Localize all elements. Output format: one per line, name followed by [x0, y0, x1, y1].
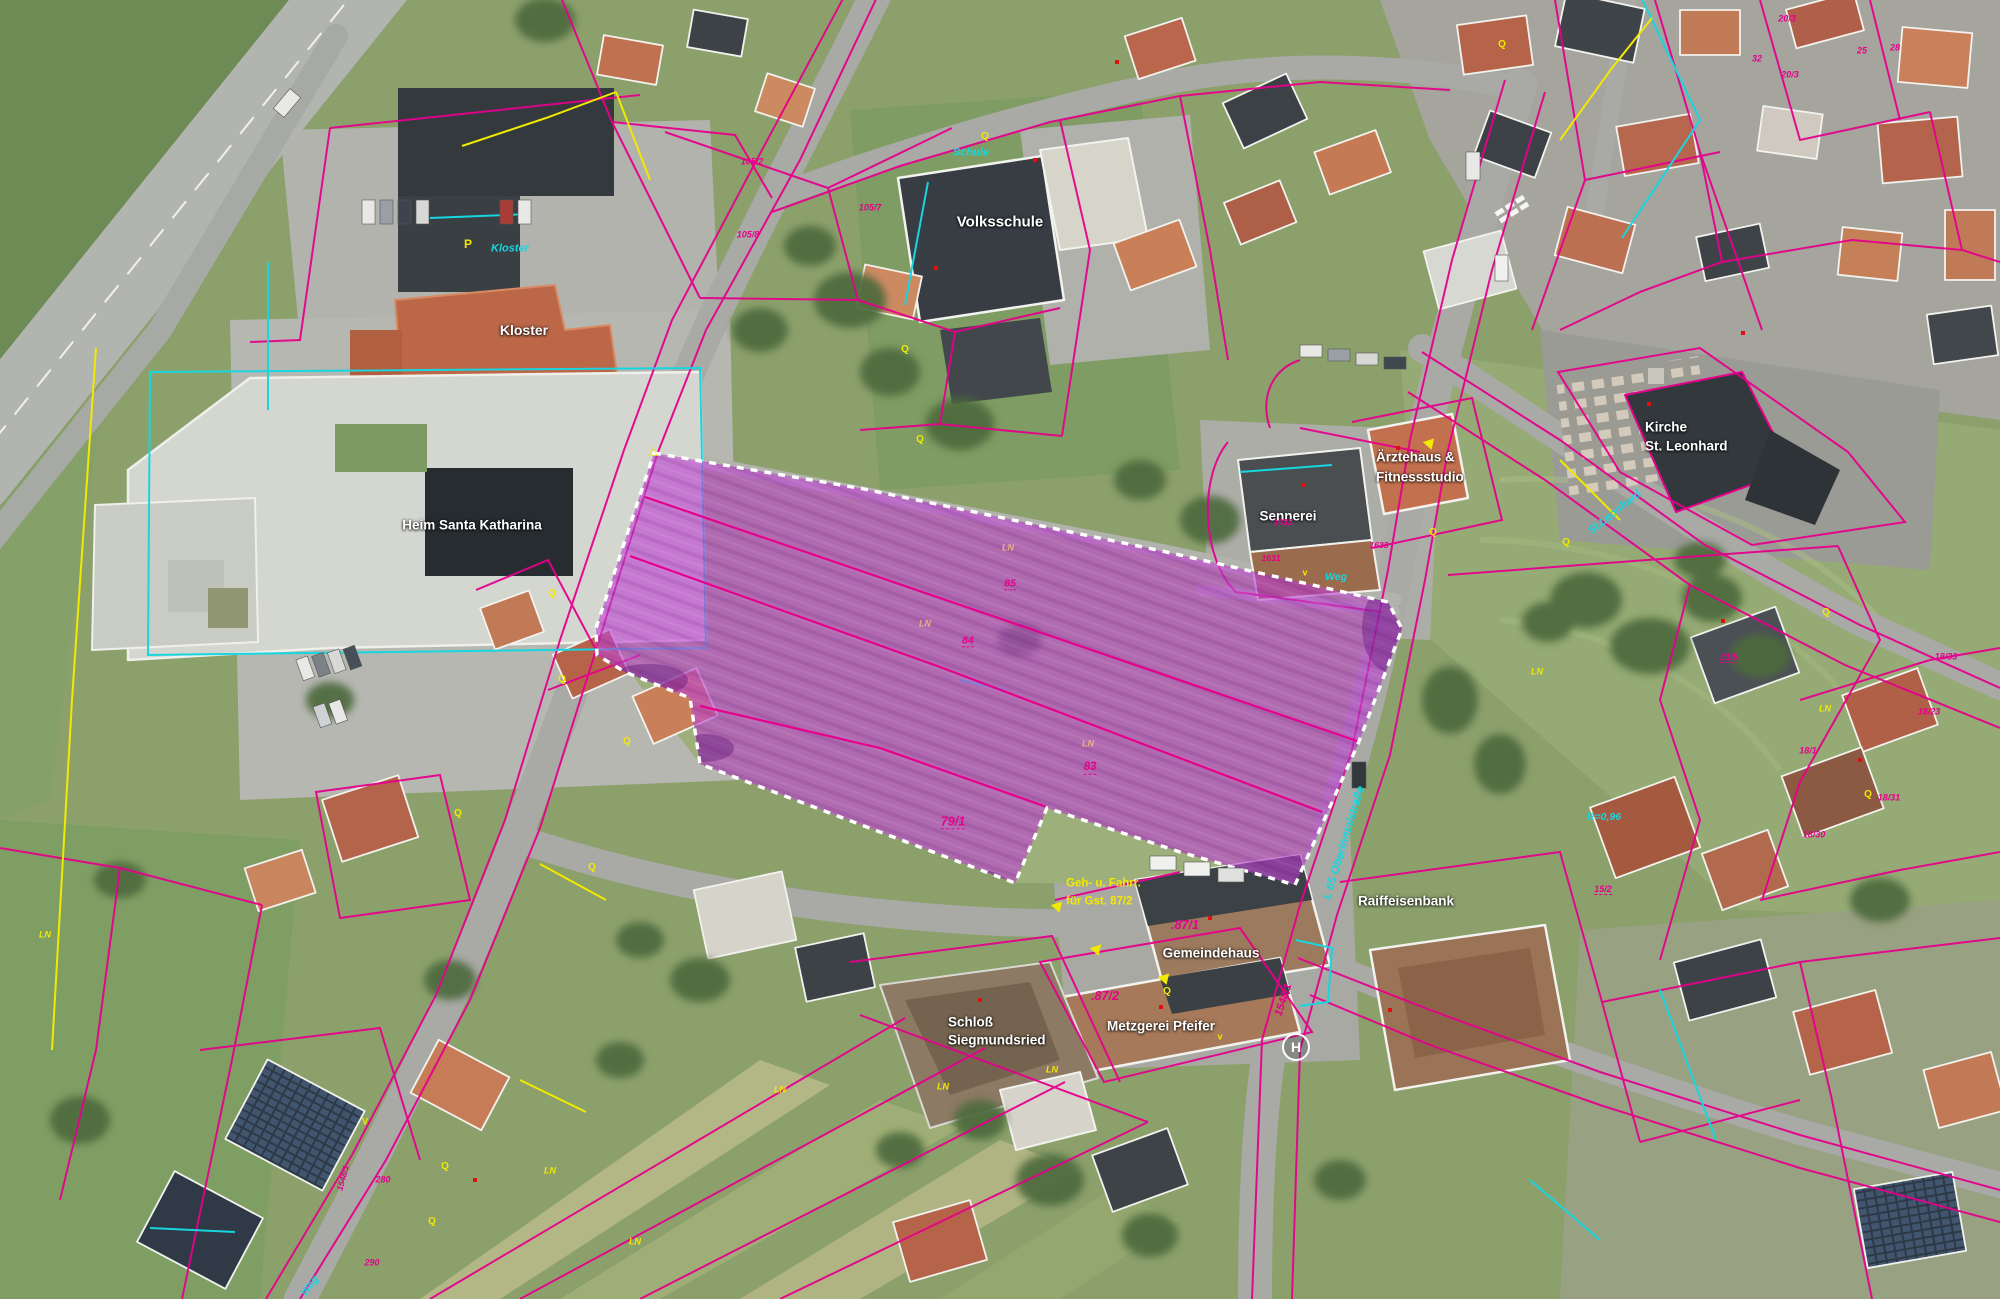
q-symbol: Q [1429, 528, 1437, 538]
parcel-number: 18/30 [1803, 831, 1826, 840]
survey-point-icon [1741, 331, 1745, 335]
st-leonhard-street-label: St.Leonhard [1586, 489, 1643, 537]
q-symbol: Q [1864, 790, 1872, 800]
survey-point-icon [1033, 158, 1037, 162]
schule-street-label: Schule [953, 148, 989, 159]
kloster-label: Kloster [500, 323, 548, 337]
parcel-number: 105/2 [741, 158, 764, 167]
parcel-number: 25 [1857, 47, 1867, 56]
arrow-triangle-icon [1090, 944, 1105, 957]
kirche-label-line2: St. Leonhard [1645, 439, 1728, 453]
aerztehaus-label-line1: Ärztehaus & [1376, 450, 1455, 464]
q-symbol: Q [1562, 538, 1570, 548]
survey-point-icon [978, 998, 982, 1002]
survey-point-icon [1302, 483, 1306, 487]
parcel-number: 1632 [1274, 518, 1293, 527]
bus-stop-icon: H [1282, 1033, 1310, 1061]
parcel-number: 32 [1752, 55, 1762, 64]
arrow-triangle-icon [1051, 901, 1066, 914]
v-marker: v [1217, 1033, 1222, 1042]
survey-point-icon [934, 266, 938, 270]
parcel-number: 18/1 [1799, 747, 1817, 756]
parcel-number: 18/31 [1878, 794, 1901, 803]
metzgerei-pfeifer-label: Metzgerei Pfeifer [1107, 1019, 1215, 1033]
kloster-street-label: Kloster [491, 244, 529, 255]
q-symbol: Q [916, 435, 924, 445]
q-symbol: Q [901, 345, 909, 355]
q-symbol: Q [1163, 987, 1171, 997]
ln-label: LN [1046, 1066, 1058, 1075]
weg-street-label: Weg [1325, 572, 1347, 583]
v-marker: v [1302, 569, 1307, 578]
heim-santa-katharina-label: Heim Santa Katharina [402, 518, 542, 532]
parcel-number: 18/23 [1918, 708, 1941, 717]
q-symbol: Q [588, 863, 596, 873]
ln-label: LN [937, 1083, 949, 1092]
parcel-number: .87/2 [1091, 990, 1119, 1003]
ln-label: LN [1082, 740, 1094, 749]
geh-fahrr-annotation-line1: Geh- u. Fahrr. [1066, 878, 1141, 890]
parcel-number: 290 [364, 1259, 379, 1268]
geh-fahrr-annotation-line2: für Gst. 87/2 [1066, 896, 1132, 908]
survey-point-icon [1647, 402, 1651, 406]
parcel-number: 83 [1084, 762, 1097, 775]
radius-annotation: R=0,96 [1587, 812, 1621, 823]
parcel-number: 105/8 [737, 231, 760, 240]
q-symbol: Q [428, 1217, 436, 1227]
parcel-number: 105/7 [859, 204, 882, 213]
aerztehaus-label-line2: Fitnessstudio [1376, 470, 1464, 484]
parcel-number: 1633 [1370, 541, 1389, 550]
volksschule-label: Volksschule [957, 215, 1043, 230]
arrow-triangle-icon [1158, 973, 1173, 986]
ln-label: LN [1819, 705, 1831, 714]
ln-label: LN [39, 931, 51, 940]
ln-label: LN [544, 1167, 556, 1176]
gemeindehaus-label: Gemeindehaus [1163, 946, 1260, 960]
ln-label: LN [1002, 544, 1014, 553]
map-labels-layer: VolksschuleKlosterHeim Santa KatharinaKi… [0, 0, 2000, 1299]
parcel-number: 20/3 [1778, 15, 1796, 24]
survey-point-icon [1858, 758, 1862, 762]
survey-point-icon [1396, 446, 1400, 450]
parcel-number: .87/1 [1171, 919, 1199, 932]
survey-point-icon [1388, 1008, 1392, 1012]
triangle-marker-icon: △ [648, 444, 657, 456]
q-symbol: Q [558, 675, 566, 685]
parcel-number: 1548/1 [336, 1164, 351, 1191]
parcel-number: 85 [1004, 578, 1016, 590]
q-symbol: Q [548, 589, 556, 599]
weg-street-label-2: Weg [299, 1274, 321, 1298]
parcel-number: 1631 [1262, 554, 1281, 563]
ln-label: LN [919, 620, 931, 629]
parking-label: P [464, 238, 472, 250]
survey-point-icon [1721, 619, 1725, 623]
v-marker: V [362, 1118, 368, 1127]
parcel-number: 15/2 [1594, 885, 1612, 895]
ln-label: LN [629, 1238, 641, 1247]
ln-label: LN [1531, 668, 1543, 677]
q-symbol: Q [623, 737, 631, 747]
parcel-number: 280 [375, 1176, 390, 1185]
q-symbol: Q [454, 809, 462, 819]
schloss-label-line2: Siegmundsried [948, 1033, 1046, 1047]
schloss-label-line1: Schloß [948, 1015, 993, 1029]
kirche-label-line1: Kirche [1645, 420, 1687, 434]
q-symbol: Q [1498, 40, 1506, 50]
aerial-map: VolksschuleKlosterHeim Santa KatharinaKi… [0, 0, 2000, 1299]
parcel-number: 28 [1890, 44, 1900, 53]
parcel-number: 20/3 [1781, 71, 1799, 80]
parcel-number: 1548/1 [1274, 982, 1295, 1017]
q-symbol: Q [981, 132, 989, 142]
q-symbol: Q [441, 1162, 449, 1172]
ln-label: LN [774, 1086, 786, 1095]
survey-point-icon [1208, 916, 1212, 920]
parcel-number: 21/6 [1720, 653, 1738, 663]
parcel-number: 84 [962, 635, 974, 647]
raiffeisenbank-label: Raiffeisenbank [1358, 894, 1454, 908]
survey-point-icon [1115, 60, 1119, 64]
oberinntalstrasse-street-label: L 65 Oberinntalstraße [1322, 785, 1368, 901]
parcel-number: 18/33 [1935, 653, 1958, 662]
q-symbol: Q [1822, 608, 1830, 618]
parcel-number: 79/1 [941, 815, 965, 829]
survey-point-icon [1159, 1005, 1163, 1009]
survey-point-icon [473, 1178, 477, 1182]
